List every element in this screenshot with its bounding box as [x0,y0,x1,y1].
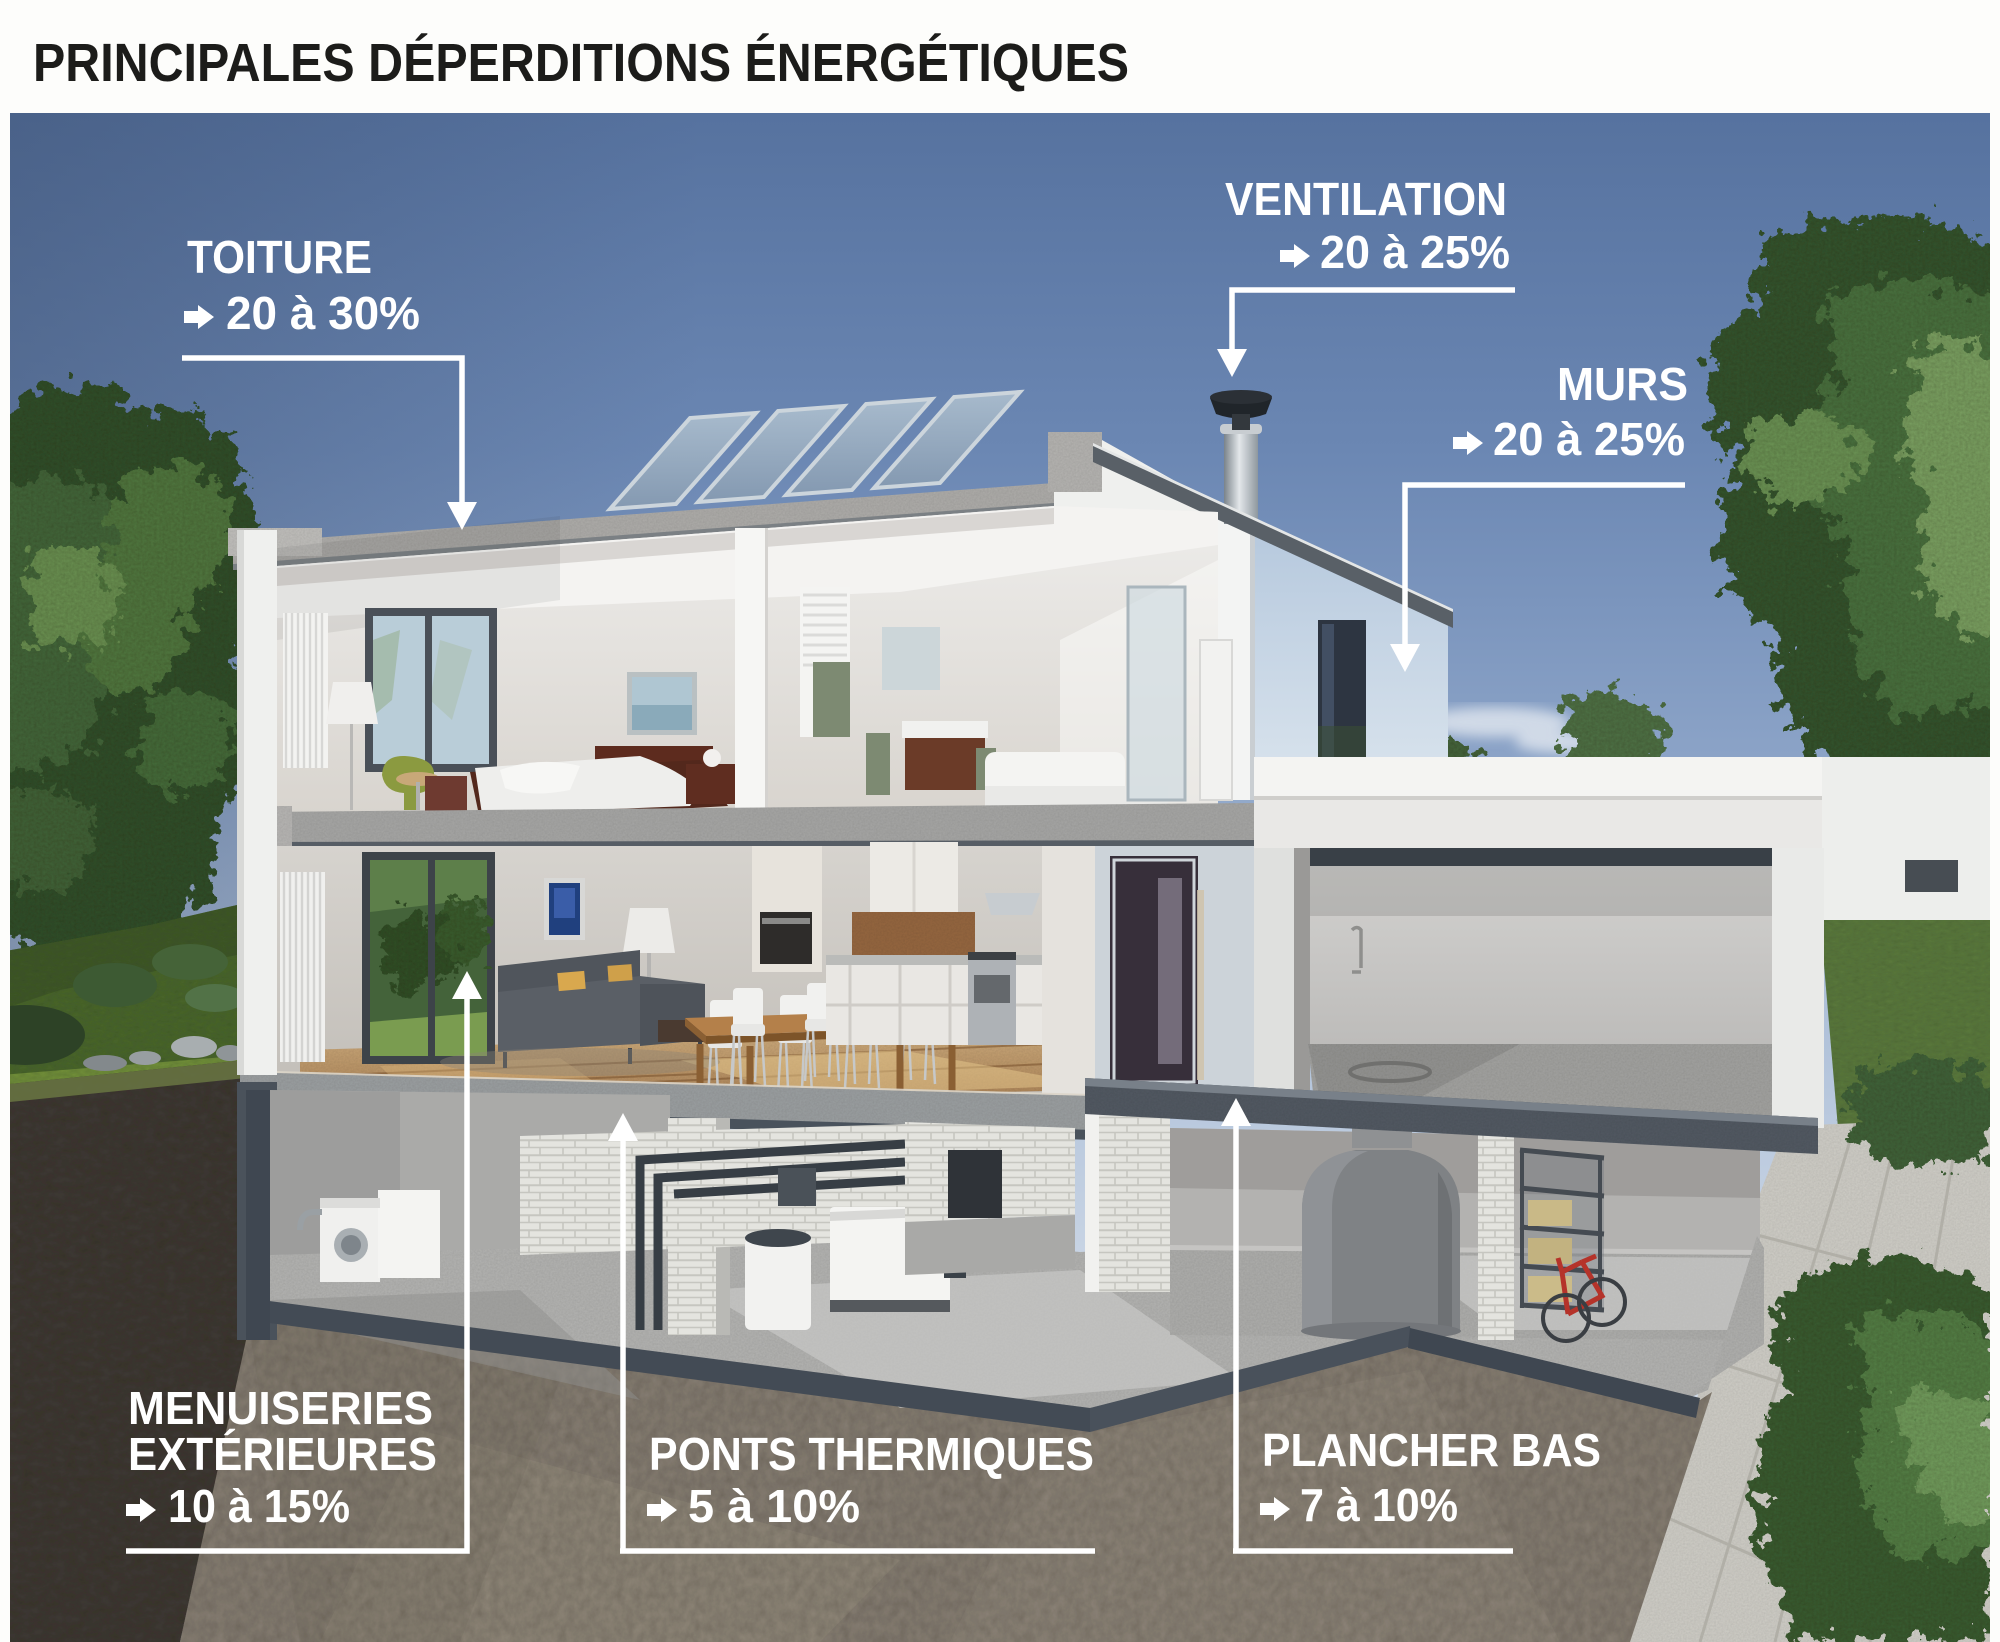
svg-text:20 à 30%: 20 à 30% [226,287,420,339]
svg-text:10 à 15%: 10 à 15% [168,1480,350,1532]
svg-text:5 à 10%: 5 à 10% [688,1480,860,1532]
svg-text:PRINCIPALES DÉPERDITIONS ÉNERG: PRINCIPALES DÉPERDITIONS ÉNERGÉTIQUES [33,33,1129,93]
svg-text:PONTS THERMIQUES: PONTS THERMIQUES [649,1428,1094,1480]
svg-text:TOITURE: TOITURE [187,231,372,283]
svg-text:MURS: MURS [1557,358,1688,410]
svg-text:VENTILATION: VENTILATION [1225,173,1507,225]
svg-text:7 à 10%: 7 à 10% [1300,1479,1458,1531]
svg-text:20 à 25%: 20 à 25% [1493,413,1685,465]
svg-text:20 à 25%: 20 à 25% [1320,226,1510,278]
svg-text:EXTÉRIEURES: EXTÉRIEURES [128,1428,437,1480]
svg-text:PLANCHER BAS: PLANCHER BAS [1262,1424,1601,1476]
svg-text:MENUISERIES: MENUISERIES [128,1382,433,1434]
